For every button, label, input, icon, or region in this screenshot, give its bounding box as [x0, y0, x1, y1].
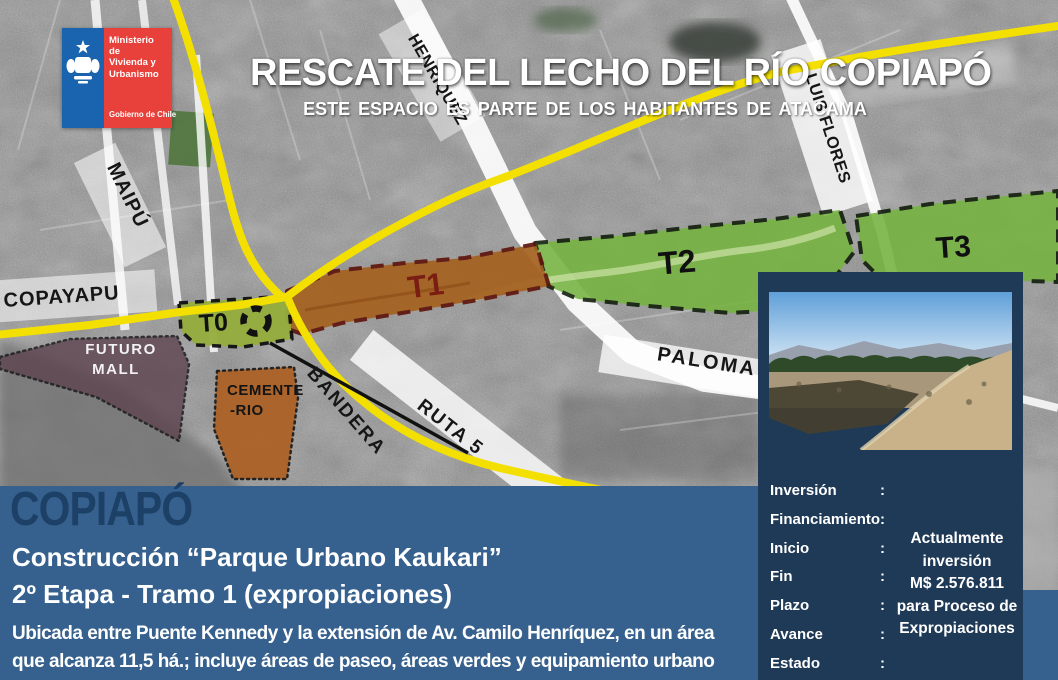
project-banner: COPIAPÓ Construcción “Parque Urbano Kauk… — [0, 486, 758, 680]
info-label: Inversión — [770, 482, 837, 499]
zone-label-t3: T3 — [935, 230, 972, 265]
logo-government-label: Gobierno de Chile — [109, 110, 176, 119]
separator: : — [880, 655, 885, 672]
minvu-logo: Ministerio de Vivienda y Urbanismo Gobie… — [62, 28, 172, 128]
info-label: Inicio — [770, 540, 809, 557]
logo-coat-of-arms — [62, 28, 104, 128]
highlight-line4: para Proceso de — [891, 596, 1023, 619]
separator: : — [880, 540, 885, 557]
info-row-estado: Estado: — [770, 655, 1010, 679]
separator: : — [880, 597, 885, 614]
info-row-inversion: Inversión: — [770, 482, 1010, 506]
banner-right-strip — [1023, 590, 1058, 680]
slide: MAIPÚ COPAYAPU HENRIQUEZ LUIS FLORES PAL… — [0, 0, 1058, 680]
futuro-mall-label-line2: MALL — [92, 361, 140, 378]
city-name: COPIAPÓ — [10, 486, 192, 535]
cementerio-label-line1: CEMENTE — [227, 382, 304, 399]
slide-subtitle: ESTE ESPACIO ES PARTE DE LOS HABITANTES … — [285, 99, 885, 120]
separator: : — [880, 568, 885, 585]
separator: : — [880, 511, 885, 528]
slide-title: RESCATE DEL LECHO DEL RÍO COPIAPÓ — [250, 52, 950, 95]
info-label: Financiamiento — [770, 511, 880, 528]
cementerio-label-line2: -RIO — [230, 402, 264, 419]
info-label: Avance — [770, 626, 823, 643]
highlight-line5: Expropiaciones — [891, 618, 1023, 641]
info-panel: Inversión: Financiamiento: Inicio: Fin: … — [758, 272, 1023, 680]
info-label: Estado — [770, 655, 820, 672]
highlight-line1: Actualmente — [891, 528, 1023, 551]
separator: : — [880, 626, 885, 643]
zone-label-t0: T0 — [198, 308, 229, 338]
info-label: Fin — [770, 568, 793, 585]
project-stage: 2º Etapa - Tramo 1 (expropiaciones) — [12, 579, 452, 610]
highlight-line3: M$ 2.576.811 — [891, 573, 1023, 596]
logo-ministry-line2: Vivienda y — [109, 57, 167, 68]
zone-label-t2: T2 — [657, 242, 697, 281]
highlight-line2: inversión — [891, 551, 1023, 574]
chile-crest-icon — [62, 28, 104, 128]
project-description-line1: Ubicada entre Puente Kennedy y la extens… — [12, 623, 714, 645]
logo-ministry-line1: Ministerio de — [109, 35, 167, 57]
project-description-line2: que alcanza 11,5 há.; incluye áreas de p… — [12, 651, 714, 673]
project-name: Construcción “Parque Urbano Kaukari” — [12, 542, 502, 573]
info-label: Plazo — [770, 597, 809, 614]
futuro-mall-label-line1: FUTURO — [85, 341, 157, 358]
separator: : — [880, 482, 885, 499]
zone-label-t1: T1 — [406, 266, 446, 305]
logo-ministry-line3: Urbanismo — [109, 69, 167, 80]
investment-highlight: Actualmente inversión M$ 2.576.811 para … — [891, 528, 1023, 641]
